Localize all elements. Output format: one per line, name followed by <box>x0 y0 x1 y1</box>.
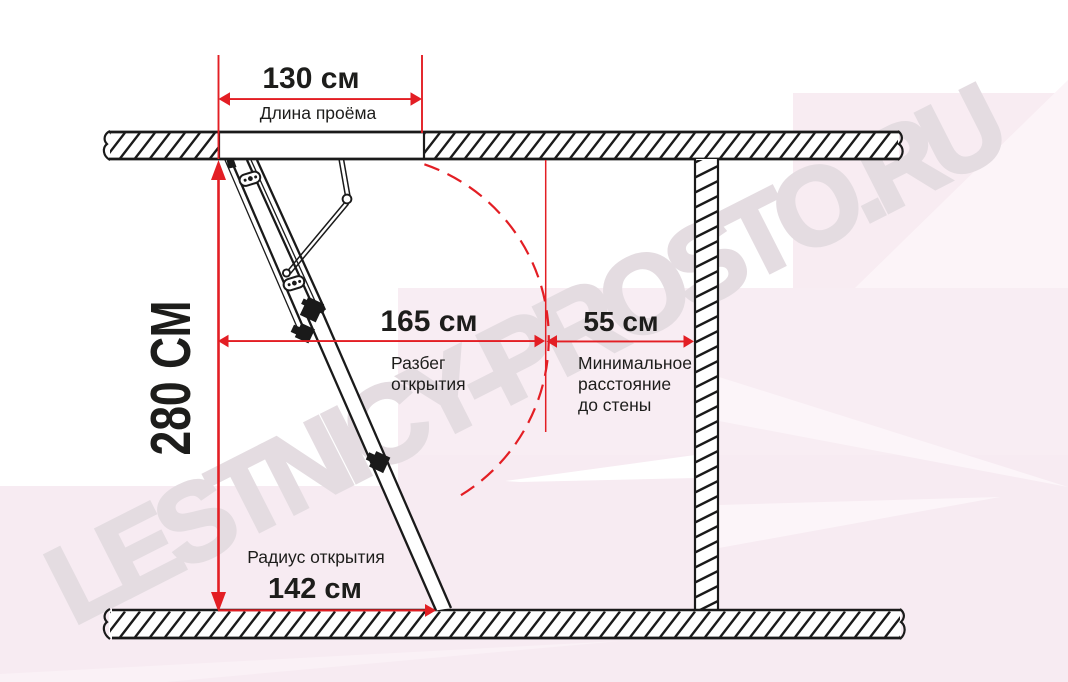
svg-text:280 СМ: 280 СМ <box>139 301 203 456</box>
svg-text:Минимальное: Минимальное <box>578 353 692 373</box>
svg-text:открытия: открытия <box>391 374 466 394</box>
svg-text:142 см: 142 см <box>268 573 362 605</box>
svg-text:расстояние: расстояние <box>578 374 671 394</box>
svg-text:Длина проёма: Длина проёма <box>260 103 377 123</box>
svg-text:Радиус открытия: Радиус открытия <box>247 547 385 567</box>
svg-text:165 см: 165 см <box>380 305 477 338</box>
svg-text:до стены: до стены <box>578 395 651 415</box>
svg-text:Разбег: Разбег <box>391 353 445 373</box>
svg-text:130 см: 130 см <box>262 62 359 95</box>
svg-text:55 см: 55 см <box>583 306 658 337</box>
